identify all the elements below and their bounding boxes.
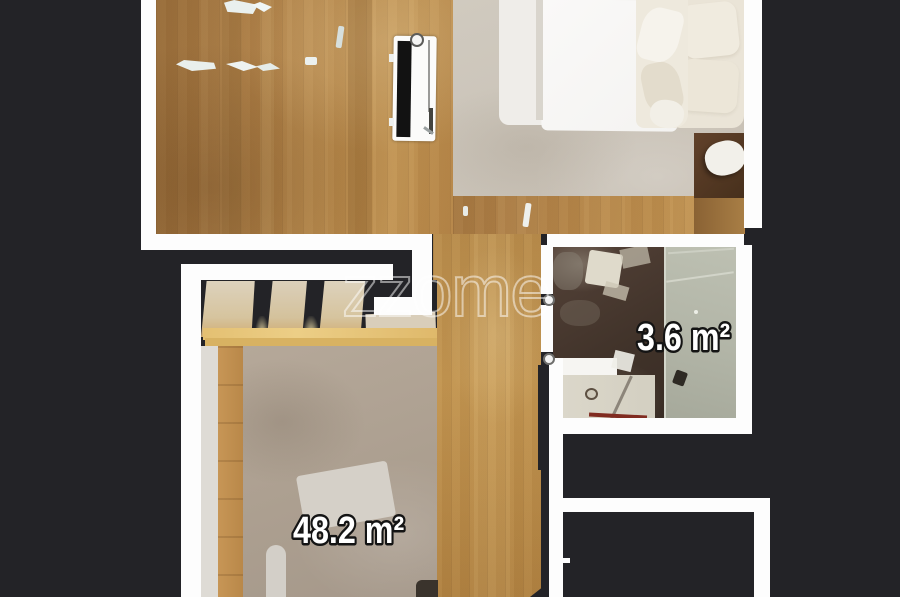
svg-text:48.2 m²: 48.2 m²: [293, 510, 404, 552]
svg-text:3.6 m²: 3.6 m²: [637, 317, 730, 359]
